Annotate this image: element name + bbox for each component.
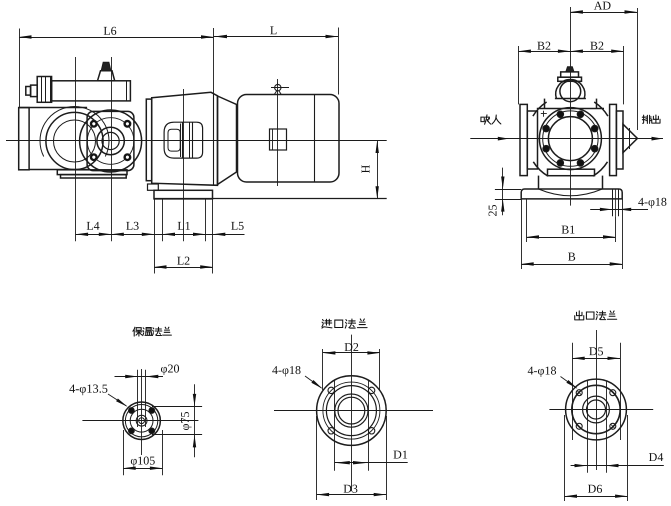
svg-text:4-φ18: 4-φ18 bbox=[638, 195, 667, 209]
svg-text:4-φ18: 4-φ18 bbox=[528, 363, 557, 377]
svg-text:B1: B1 bbox=[561, 222, 575, 236]
svg-text:AD: AD bbox=[594, 0, 612, 13]
svg-text:D1: D1 bbox=[393, 447, 408, 461]
svg-text:L5: L5 bbox=[231, 219, 244, 233]
svg-text:4-φ13.5: 4-φ13.5 bbox=[69, 382, 108, 396]
svg-text:D6: D6 bbox=[588, 482, 603, 496]
svg-text:B: B bbox=[568, 249, 576, 263]
svg-text:B2: B2 bbox=[537, 39, 551, 53]
svg-text:25: 25 bbox=[486, 205, 500, 217]
svg-text:φ105: φ105 bbox=[130, 453, 155, 467]
svg-text:D3: D3 bbox=[343, 482, 358, 496]
svg-text:φ75: φ75 bbox=[178, 412, 192, 431]
svg-text:L6: L6 bbox=[103, 24, 116, 38]
svg-text:L1: L1 bbox=[177, 219, 190, 233]
svg-text:L2: L2 bbox=[177, 254, 190, 268]
svg-text:4-φ18: 4-φ18 bbox=[272, 363, 301, 377]
svg-text:L3: L3 bbox=[126, 219, 139, 233]
svg-text:H: H bbox=[359, 164, 373, 173]
svg-text:B2: B2 bbox=[590, 39, 604, 53]
svg-text:D4: D4 bbox=[649, 450, 664, 464]
svg-text:D2: D2 bbox=[344, 340, 359, 354]
svg-text:φ20: φ20 bbox=[161, 361, 180, 375]
svg-text:L4: L4 bbox=[86, 219, 99, 233]
svg-text:L: L bbox=[270, 23, 277, 37]
svg-text:D5: D5 bbox=[589, 344, 604, 358]
